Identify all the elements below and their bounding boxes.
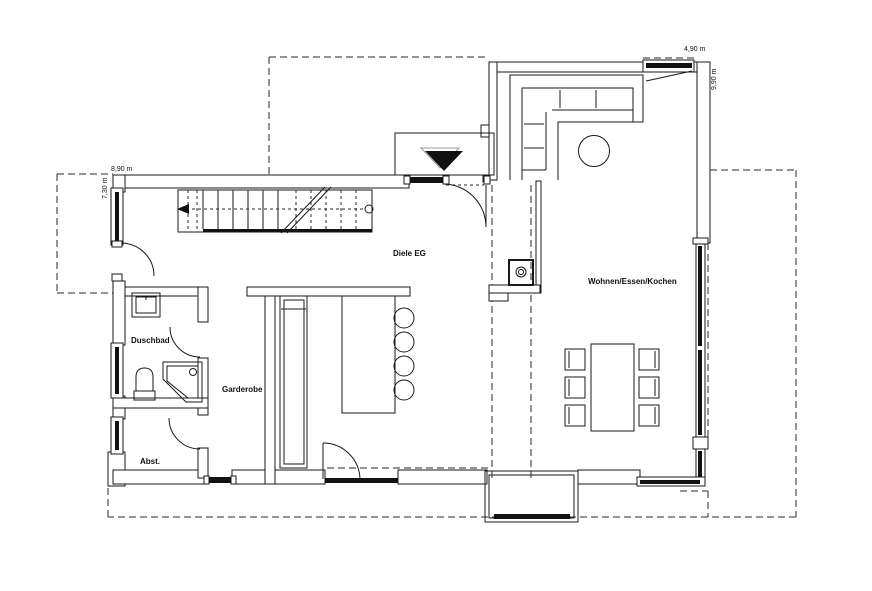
corner-sofa [510,75,643,180]
room-label-storage: Abst. [140,457,160,466]
terrace-door-glazing [325,478,398,483]
corner-window-south-east [637,449,705,486]
staircase [177,187,373,233]
entrance-arrow-icon [425,151,463,171]
window-bath [111,343,123,398]
side-door-left [112,241,154,281]
entrance-porch [395,133,494,175]
window-storage [111,417,123,454]
dimension-right-height: 9,90 m [711,68,718,90]
room-label-bath: Duschbad [131,336,170,345]
dimension-left-height: 7,30 m [102,177,109,199]
room-label-living: Wohnen/Essen/Kochen [588,277,677,286]
kitchen-island [342,296,414,413]
terrace-platform [485,471,578,522]
dimension-top-right-width: 4,90 m [684,46,706,53]
window-storage-south [204,476,236,484]
wood-stove [509,260,533,285]
entry-sidelight-window [404,176,490,184]
room-label-hall: Diele EG [393,249,426,258]
tall-cabinet [280,296,307,468]
window-left-upper [111,188,123,245]
terrace-door [323,443,360,480]
dimension-top-left-width: 8,90 m [111,166,133,173]
window-living-east [693,238,708,449]
entrance-door [443,184,486,227]
corner-shower [163,362,202,402]
washbasin [132,293,160,317]
floor-plan-drawing: Diele EG Wohnen/Essen/Kochen Duschbad Ga… [0,0,872,591]
dining-table-group [565,344,659,431]
floor-plan-canvas: Diele EG Wohnen/Essen/Kochen Duschbad Ga… [0,0,872,591]
window-living-north [643,60,694,81]
round-side-table [579,136,610,167]
bath-door [170,327,200,357]
room-label-wardrobe: Garderobe [222,385,263,394]
storage-door [169,418,200,449]
toilet [134,368,155,400]
